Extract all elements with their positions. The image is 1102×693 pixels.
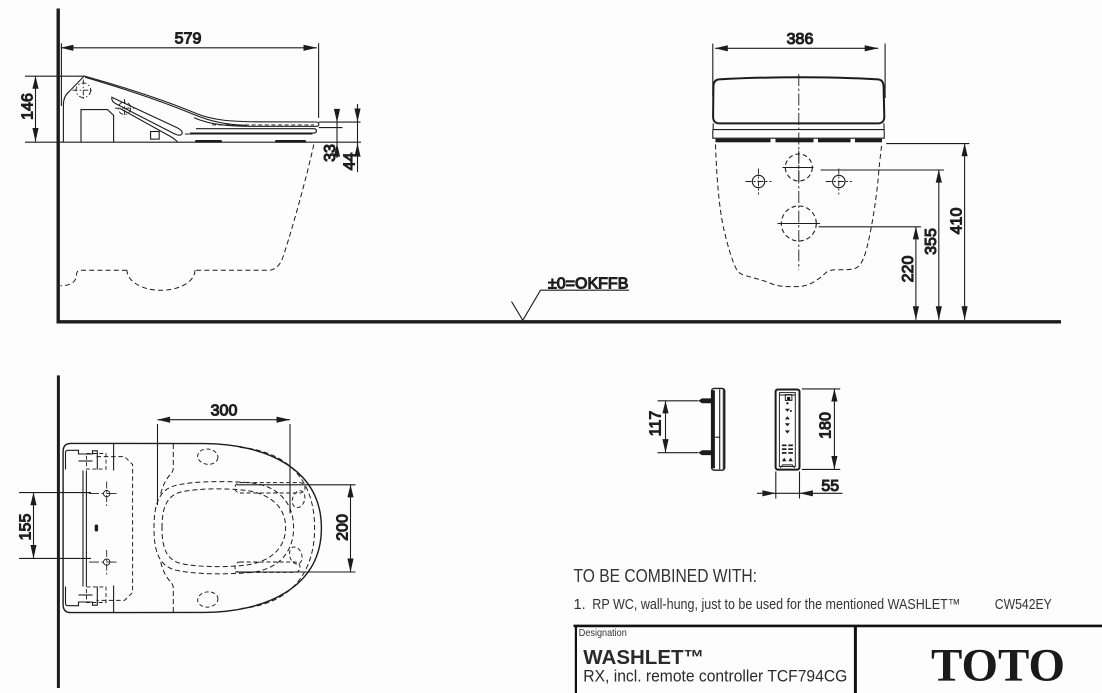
svg-text:220: 220 [900,256,917,283]
svg-text:RP WC, wall-hung, just to be u: RP WC, wall-hung, just to be used for th… [592,597,960,613]
svg-text:355: 355 [923,228,940,255]
svg-text:Designation: Designation [579,628,627,639]
svg-text:180: 180 [818,412,835,439]
svg-text:TO BE COMBINED WITH:: TO BE COMBINED WITH: [574,565,758,586]
svg-text:RX, incl. remote controller TC: RX, incl. remote controller TCF794CG [583,666,847,685]
svg-text:300: 300 [211,403,238,420]
svg-text:±0=OKFFB: ±0=OKFFB [548,275,628,292]
svg-text:410: 410 [949,208,966,235]
svg-text:TOTO: TOTO [931,640,1065,692]
svg-text:CW542EY: CW542EY [995,596,1052,613]
svg-text:386: 386 [787,31,814,48]
svg-text:155: 155 [18,514,35,541]
svg-text:579: 579 [175,31,202,48]
svg-text:55: 55 [821,478,839,495]
svg-text:33: 33 [322,144,339,162]
svg-text:146: 146 [20,93,37,120]
svg-text:44: 44 [342,153,359,171]
svg-text:117: 117 [648,411,665,437]
svg-text:1.: 1. [574,597,586,613]
svg-text:200: 200 [335,514,352,541]
